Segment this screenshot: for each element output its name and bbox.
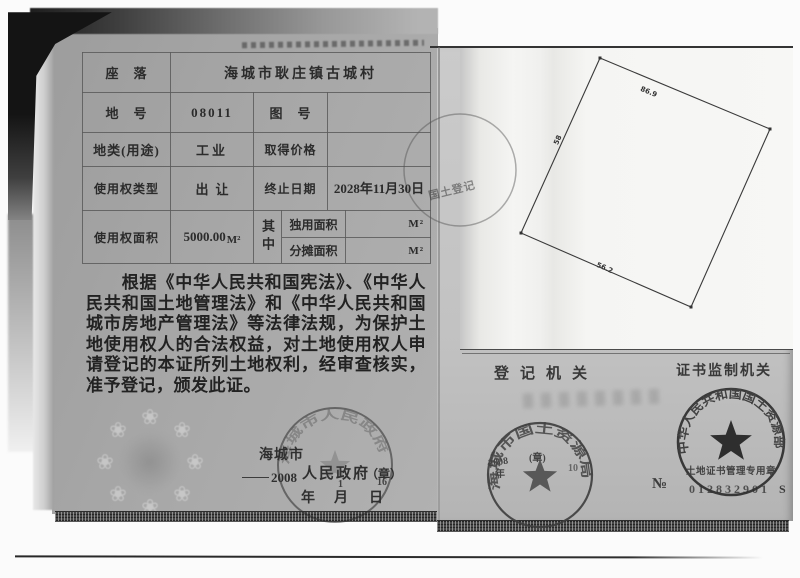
- registry-seal-day: 10: [568, 463, 578, 474]
- land-class-value: 工业: [171, 133, 253, 166]
- shared-area-unit: M²: [346, 238, 430, 263]
- location-value: 海城市耿庄镇古城村: [171, 53, 430, 92]
- area-unit: M²: [227, 234, 241, 246]
- area-value: 5000.00 M²: [171, 211, 253, 263]
- registry-seal-year-label: 年: [495, 467, 505, 480]
- flower-icon: ❀: [170, 418, 194, 442]
- legal-paragraph: 根据《中华人民共和国宪法》、《中华人民共和国土地管理法》和《中华人民共和国城市房…: [86, 273, 426, 395]
- star-icon: [320, 450, 350, 479]
- right-type-label: 使用权类型: [83, 167, 170, 210]
- city-government-seal: 海城市人民政府: [270, 400, 400, 530]
- issuer-underline: [242, 477, 269, 478]
- land-bureau-seal: 海城市国土资源局 2008 年 (章) 10: [482, 417, 598, 533]
- flower-icon: ❀: [138, 405, 162, 429]
- table-line: [82, 263, 431, 264]
- map-no-label: 图 号: [254, 93, 327, 132]
- ministry-seal: 中华人民共和国国土资源部 土地证书管理专用章: [672, 383, 790, 501]
- price-label: 取得价格: [254, 133, 327, 166]
- right-type-value: 出让: [171, 167, 253, 210]
- shared-area-label: 分摊面积: [282, 238, 345, 263]
- flower-icon: ❀: [183, 450, 207, 474]
- corner-marker: [690, 306, 693, 309]
- area-number: 5000.00: [184, 229, 226, 245]
- sole-area-label: 独用面积: [282, 211, 345, 237]
- location-label: 座 落: [83, 53, 170, 92]
- sole-area-unit: M²: [346, 211, 430, 237]
- parcel-no-value: 08011: [171, 93, 253, 132]
- registry-seal-year: 2008: [488, 456, 509, 470]
- end-date-value: 2028年11月30日: [328, 167, 430, 210]
- parcel-no-label: 地 号: [83, 93, 170, 132]
- star-icon: [710, 420, 752, 460]
- registry-seal-note: (章): [529, 451, 546, 464]
- flower-icon: ❀: [170, 482, 194, 506]
- bottom-shadow-line: [15, 555, 763, 558]
- corner-marker: [769, 128, 772, 131]
- ministry-seal-inner-text: 土地证书管理专用章: [686, 465, 776, 477]
- scanned-certificate: 座 落 海城市耿庄镇古城村 地 号 08011 图 号 地类(用途) 工业 取得…: [0, 0, 800, 578]
- among-label: 其中: [254, 211, 281, 263]
- flower-icon: ❀: [93, 450, 117, 474]
- plot-bottom-double-rule: [462, 353, 790, 354]
- end-date-label: 终止日期: [254, 167, 327, 210]
- corner-marker: [599, 57, 602, 60]
- page-curl-highlight: [33, 16, 54, 510]
- watermark-center: [120, 432, 180, 492]
- supervision-section-label: 证书监制机关: [676, 360, 772, 380]
- serial-prefix: №: [652, 476, 667, 493]
- right-margin: [793, 0, 800, 578]
- registry-section-label: 登记机关: [494, 362, 598, 383]
- flower-icon: ❀: [106, 482, 130, 506]
- flower-icon: ❀: [106, 418, 130, 442]
- land-class-label: 地类(用途): [83, 133, 170, 166]
- area-label: 使用权面积: [83, 211, 170, 263]
